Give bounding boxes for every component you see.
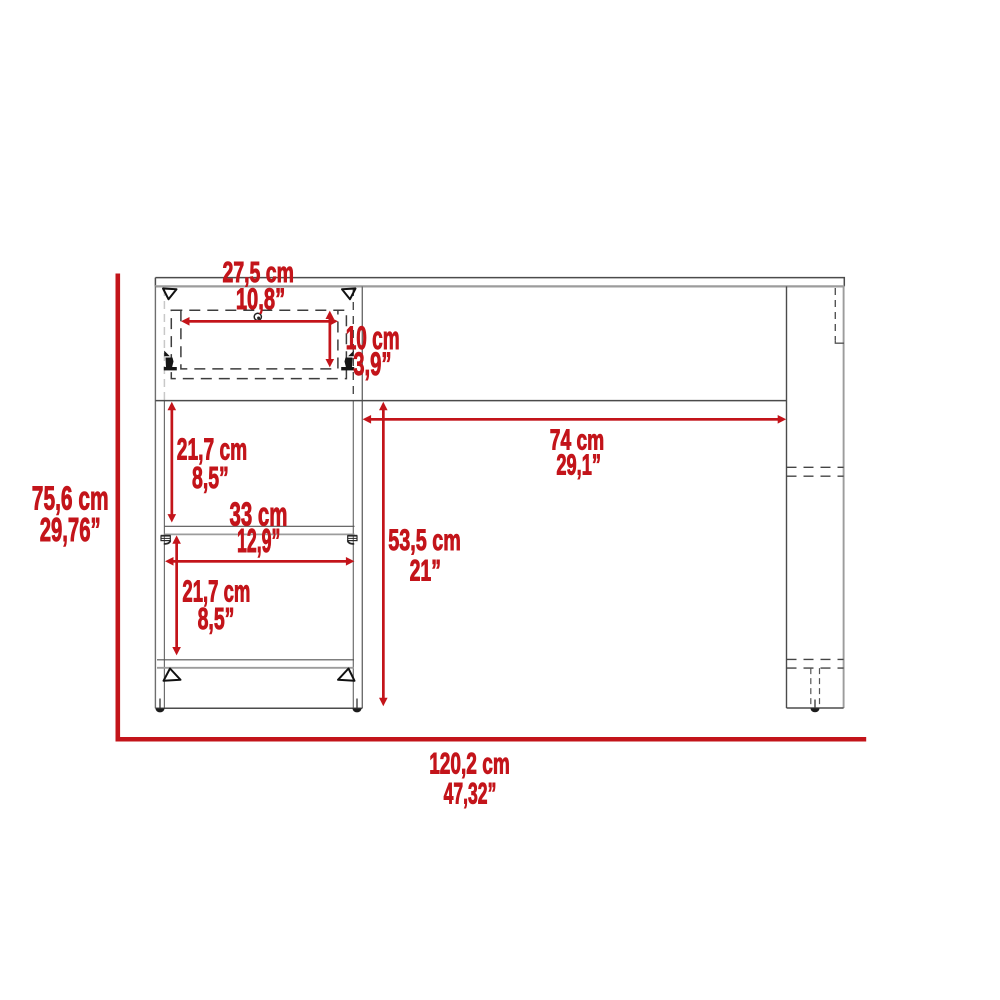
svg-text:12,9”: 12,9” (237, 522, 281, 559)
svg-text:53,5 cm: 53,5 cm (388, 524, 461, 557)
svg-text:3,9”: 3,9” (353, 346, 391, 382)
svg-text:10,8”: 10,8” (236, 283, 285, 316)
svg-text:8,5”: 8,5” (192, 460, 229, 495)
svg-text:29,1”: 29,1” (556, 450, 601, 482)
svg-text:21”: 21” (410, 555, 441, 588)
svg-text:120,2 cm: 120,2 cm (429, 748, 510, 781)
svg-text:29,76”: 29,76” (40, 511, 101, 548)
svg-text:8,5”: 8,5” (198, 601, 235, 636)
svg-text:47,32”: 47,32” (444, 778, 497, 811)
